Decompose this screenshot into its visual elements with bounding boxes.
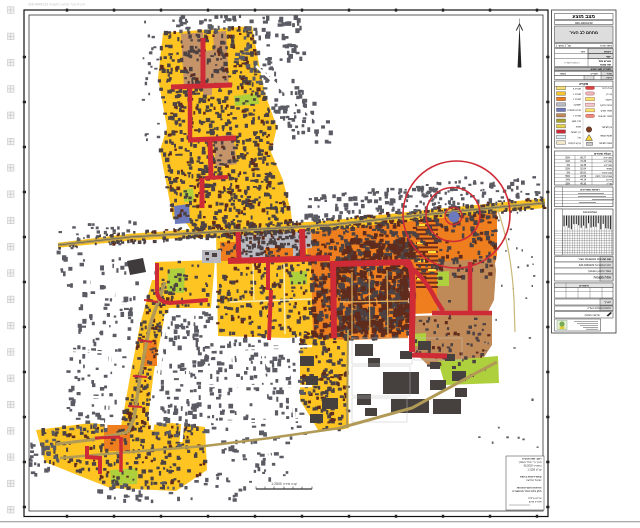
svg-text:איחוד וחלוקה: איחוד וחלוקה [600, 104, 613, 107]
svg-text:עץ לשימור: עץ לשימור [602, 126, 613, 129]
svg-text:רקע: מפה מצבית: רקע: מפה מצבית [522, 458, 542, 461]
svg-text:תאריך: תאריך [604, 301, 611, 304]
svg-text:אזור: אזור [580, 51, 585, 54]
svg-text:סכנת הצפה: סכנת הצפה [600, 135, 612, 138]
svg-text:תא שטח: תא שטח [600, 63, 611, 67]
svg-text:רשימת תשריטים: רשימת תשריטים [580, 189, 600, 192]
svg-text:מבני משק: מבני משק [572, 120, 582, 123]
svg-text:רשות: רשות [604, 50, 611, 54]
svg-text:426-0494133: 426-0494133 [575, 21, 593, 25]
svg-text:מבנה לשימור: מבנה לשימור [599, 142, 613, 145]
svg-text:דרך מוצעת: דרך מוצעת [571, 132, 582, 134]
svg-text:מוסד התכנון המוסמך: מוסד התכנון המוסמך [588, 270, 611, 273]
svg-text:תשריט: תשריט [591, 73, 599, 76]
svg-text:מגורים ד: מגורים ד [573, 116, 581, 118]
svg-text:עמ׳ 1 מתוך 1: עמ׳ 1 מתוך 1 [556, 44, 571, 48]
svg-text:מגורים א: מגורים א [573, 88, 582, 90]
svg-text:מבנים ומוסדות: מבנים ומוסדות [567, 110, 581, 112]
svg-text:נחל: נחל [578, 136, 582, 139]
svg-text:תאריך עדכון: תאריך עדכון [529, 501, 542, 504]
svg-text:חלק בלתי נפרד מהתשריט: חלק בלתי נפרד מהתשריט [512, 489, 541, 493]
svg-text:קנ״מ 1:1250: קנ״מ 1:1250 [527, 468, 542, 471]
svg-text:ועדה מקומית: ועדה מקומית [594, 276, 612, 280]
svg-text:מסחר: מסחר [575, 127, 581, 129]
svg-text:עריכה גרפית: עריכה גרפית [528, 497, 542, 500]
svg-text:מספר תא שטח: מספר תא שטח [598, 116, 612, 118]
svg-text:סה״כ: סה״כ [606, 182, 612, 185]
svg-text:גבול תכנית: גבול תכנית [602, 87, 612, 90]
svg-text:מקרא: מקרא [579, 82, 588, 86]
svg-text:חתימה וחותמת: חתימה וחותמת [585, 314, 601, 317]
svg-text:קרקע חקלאית: קרקע חקלאית [568, 142, 582, 145]
svg-text:הוראות התכנית מהוות: הוראות התכנית מהוות [517, 486, 542, 489]
svg-text:מחוז: מרכז: מחוז: מרכז [600, 45, 612, 48]
svg-text:נערך ע״י מודד מוסמך: נערך ע״י מודד מוסמך [519, 461, 542, 464]
svg-text:עמוד: עמוד [607, 73, 613, 76]
svg-text:426-0494133 תכנית מס׳ מתאר מקו: 426-0494133 תכנית מס׳ מתאר מקומית [28, 3, 86, 7]
svg-text:מספר: מספר [560, 73, 567, 76]
svg-text:מגורים ג: מגורים ג [573, 99, 581, 101]
svg-text:יעוד: יעוד [606, 55, 611, 59]
svg-text:מספר מגרש: מספר מגרש [601, 111, 613, 113]
svg-text:בתאריך 01/2020: בתאריך 01/2020 [524, 465, 542, 468]
svg-text:בהתאם לתשריט: בהתאם לתשריט [564, 62, 580, 65]
svg-text:טבלת שטחים: טבלת שטחים [594, 152, 611, 156]
svg-text:קואורדינטות ברשת: קואורדינטות ברשת [520, 476, 542, 479]
svg-text:חתימת מהנדס הועדה: חתימת מהנדס הועדה [588, 307, 612, 310]
svg-text:הפקעה: הפקעה [605, 98, 612, 101]
svg-text:תכנית מפורטת 426-0494133: תכנית מפורטת 426-0494133 [579, 263, 611, 267]
svg-text:ישראל החדשה: ישראל החדשה [526, 478, 542, 482]
svg-text:תשריט מצב מוצע: תשריט מצב מוצע [591, 68, 612, 71]
svg-text:מצב מוצע: מצב מוצע [572, 14, 595, 20]
svg-text:מתחם לב העיר: מתחם לב העיר [569, 30, 597, 35]
svg-text:שם התכנית: מתחם לב העיר: שם התכנית: מתחם לב העיר [578, 257, 611, 261]
svg-text:תעסוקה: תעסוקה [574, 104, 582, 107]
svg-text:מגורים ב: מגורים ב [573, 94, 582, 96]
svg-text:גרסה: גרסה [606, 77, 613, 80]
svg-text:קו בנין: קו בנין [606, 93, 612, 96]
svg-text:1:2500 קנה מידה: 1:2500 קנה מידה [271, 482, 297, 486]
svg-text:39%: 39% [565, 183, 570, 185]
svg-text:טבלת זכויות: טבלת זכויות [583, 210, 597, 214]
svg-text:49.36: 49.36 [580, 183, 586, 185]
svg-text:אישורים: אישורים [579, 284, 589, 287]
